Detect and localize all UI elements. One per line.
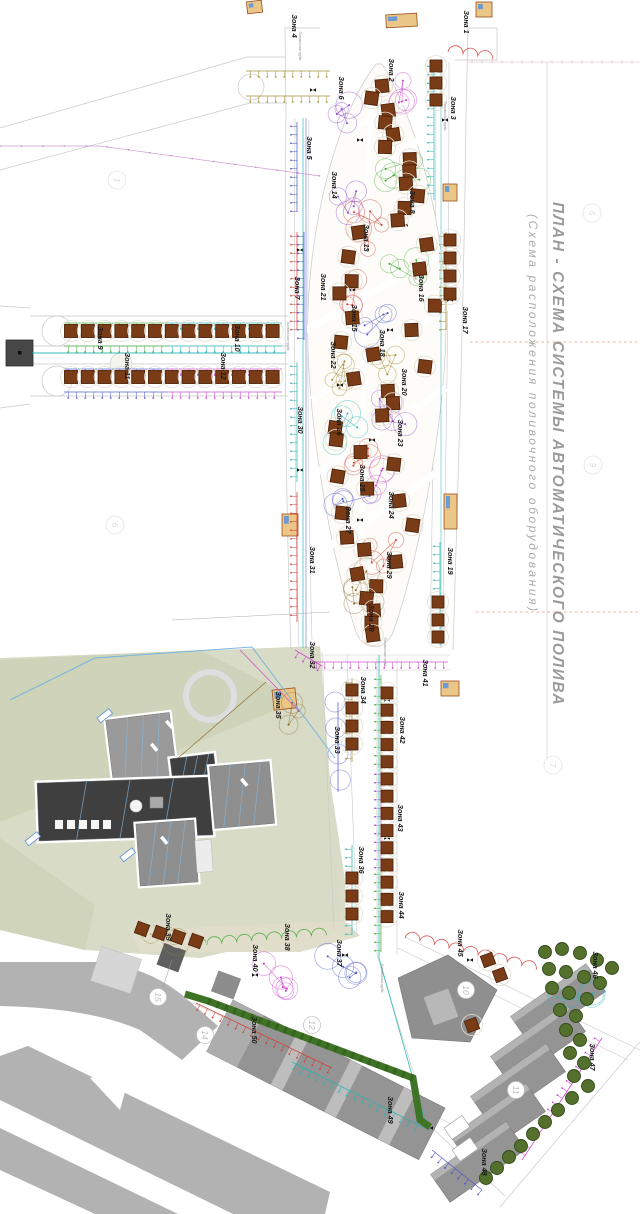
pipe-main-label: Поливочная труба bbox=[383, 638, 387, 667]
zone-label-11: Зона 11 bbox=[123, 353, 132, 380]
zone-label-7: Зона 7 bbox=[293, 276, 302, 300]
zone-label-29: Зона 29 bbox=[385, 551, 394, 578]
zone-label-23: Зона 23 bbox=[396, 419, 405, 446]
zone-label-13: Зона 13 bbox=[362, 224, 371, 251]
zone-label-30: Зона 30 bbox=[296, 406, 305, 433]
pipe-run bbox=[246, 96, 330, 103]
zone-label-45: Зона 45 bbox=[456, 929, 465, 957]
pipe-run bbox=[290, 122, 297, 212]
zone-label-6: Зона 6 bbox=[337, 76, 346, 100]
site-plan-drawing: 151412101115967 Зона 1Зона 2Зона 3Зона 4… bbox=[0, 0, 640, 1214]
zone-label-2: Зона 2 bbox=[387, 58, 396, 81]
pipe-run bbox=[374, 870, 381, 952]
zone-label-50: Зона 50 bbox=[250, 1016, 259, 1043]
zone-label-26: Зона 26 bbox=[335, 408, 344, 436]
zone-label-33: Зона 33 bbox=[333, 726, 342, 753]
grid-marker: 5 bbox=[587, 211, 596, 216]
building-number: 12 bbox=[307, 1020, 317, 1030]
pipe-main-label: Поливочная труба bbox=[380, 964, 384, 993]
zone-label-48: Зона 48 bbox=[480, 1148, 489, 1175]
zone-label-5: Зона 5 bbox=[305, 136, 314, 160]
zone-label-20: Зона 20 bbox=[400, 368, 409, 395]
zone-label-44: Зона 44 bbox=[397, 891, 406, 918]
zone-label-4: Зона 4 bbox=[290, 14, 299, 37]
grid-marker: 7 bbox=[548, 763, 557, 768]
pipe-run bbox=[246, 71, 330, 78]
zone-label-36: Зона 36 bbox=[357, 846, 366, 874]
building-number: 11 bbox=[511, 1086, 521, 1095]
zone-label-49: Зона 49 bbox=[386, 1096, 395, 1123]
zone-label-40: Зона 40 bbox=[251, 944, 260, 971]
pipe-run bbox=[64, 346, 168, 353]
pipe-main-label: Поливочная труба bbox=[443, 102, 447, 131]
zone-label-39: Зона 39 bbox=[164, 913, 173, 940]
pipe-run bbox=[64, 392, 168, 399]
zone-label-21: Зона 21 bbox=[319, 273, 328, 300]
zone-label-35: Зона 35 bbox=[274, 691, 283, 719]
zone-label-46: Зона 46 bbox=[591, 951, 600, 979]
pipe-run bbox=[168, 392, 282, 399]
zone-label-22: Зона 22 bbox=[329, 341, 338, 368]
zone-label-10: Зона 10 bbox=[233, 324, 242, 351]
pipe-main-label: Поливочная труба bbox=[286, 322, 290, 351]
pipe-main-label: Поливочная труба bbox=[298, 32, 302, 61]
zone-label-27: Зона 27 bbox=[344, 506, 353, 534]
pipe-run bbox=[290, 362, 297, 482]
zone-label-14: Зона 14 bbox=[330, 171, 339, 198]
zone-label-17: Зона 17 bbox=[461, 306, 470, 334]
zone-label-31: Зона 31 bbox=[308, 546, 317, 573]
zone-label-12: Зона 12 bbox=[219, 352, 228, 379]
plan-subtitle: (Схема расположения поливочного оборудов… bbox=[526, 214, 540, 614]
zone-label-9: Зона 9 bbox=[96, 326, 105, 349]
grid-marker: 9 bbox=[588, 463, 597, 468]
zone-label-24: Зона 24 bbox=[387, 491, 396, 518]
zone-label-16: Зона 16 bbox=[417, 274, 426, 302]
zone-label-18: Зона 18 bbox=[378, 329, 387, 356]
zone-label-8: Зона 8 bbox=[408, 190, 417, 213]
zone-label-42: Зона 42 bbox=[398, 716, 407, 743]
building-number: 14 bbox=[200, 1030, 210, 1040]
zone-label-34: Зона 34 bbox=[359, 676, 368, 703]
zone-label-32: Зона 32 bbox=[308, 641, 317, 668]
zone-label-37: Зона 37 bbox=[335, 939, 344, 967]
zone-label-3: Зона 3 bbox=[449, 96, 458, 119]
zone-label-1: Зона 1 bbox=[462, 10, 471, 33]
pipe-run bbox=[374, 770, 381, 870]
zone-label-19: Зона 19 bbox=[446, 547, 455, 574]
zone-label-25: Зона 25 bbox=[358, 464, 367, 492]
grid-marker: 6 bbox=[110, 523, 119, 528]
plan-sheet: 151412101115967 Зона 1Зона 2Зона 3Зона 4… bbox=[0, 0, 640, 1214]
building-number: 10 bbox=[461, 985, 471, 995]
zone-label-15: Зона 15 bbox=[350, 304, 359, 332]
zone-label-38: Зона 38 bbox=[283, 923, 292, 950]
grid-marker: 1 bbox=[112, 178, 121, 182]
zone-label-41: Зона 41 bbox=[421, 659, 430, 686]
zone-label-43: Зона 43 bbox=[396, 804, 405, 831]
plan-title: ПЛАН - СХЕМА СИСТЕМЫ АВТОМАТИЧЕСКОГО ПОЛ… bbox=[549, 202, 566, 706]
building-number: 15 bbox=[153, 992, 163, 1002]
zone-label-28: Зона 28 bbox=[367, 604, 376, 631]
zone-label-47: Зона 47 bbox=[588, 1043, 597, 1071]
